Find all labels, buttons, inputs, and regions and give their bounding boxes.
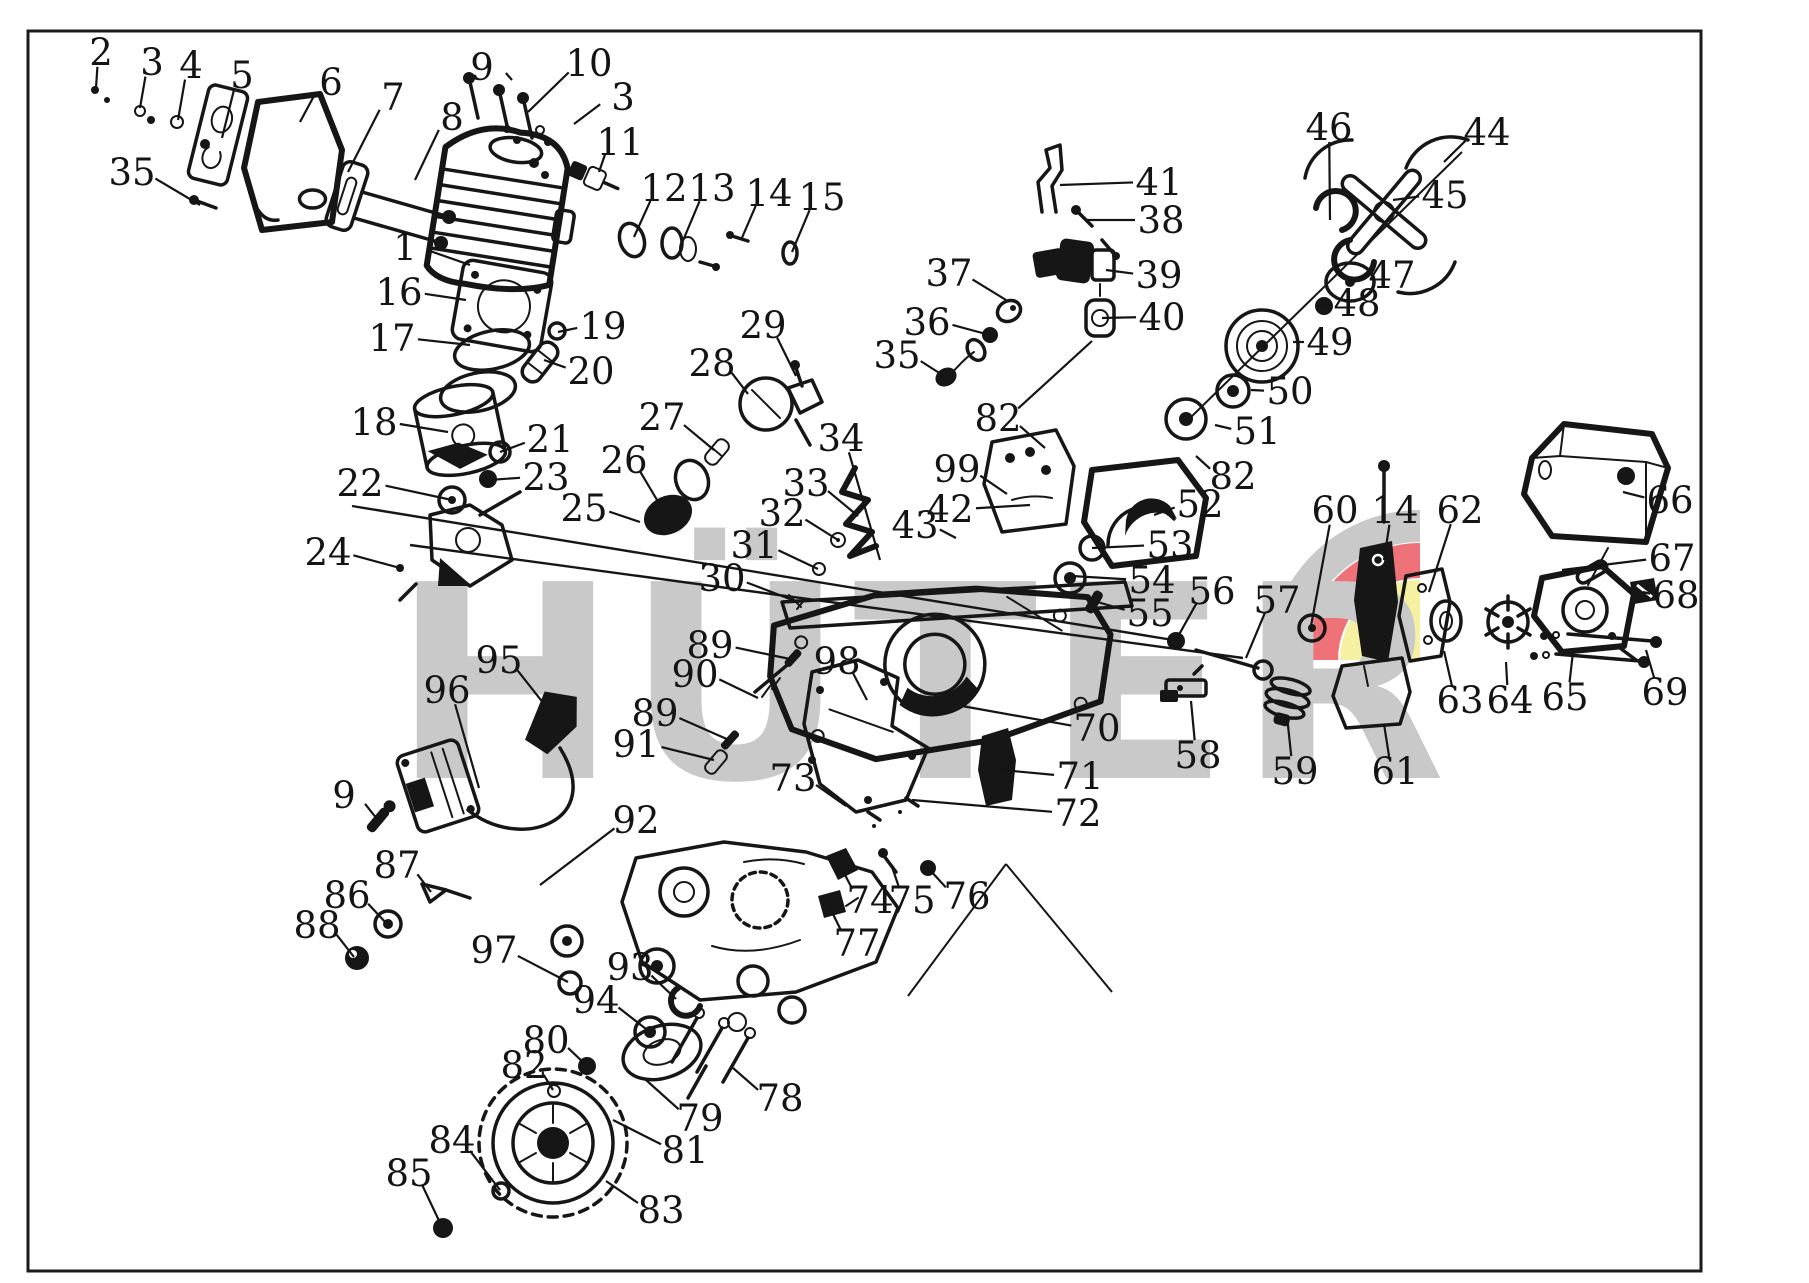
part-number-72-75: 72 [1054,792,1101,835]
part-number-56-59: 56 [1188,570,1235,613]
part-number-98-104: 98 [813,640,860,683]
part-number-11-12: 11 [596,121,643,164]
part-number-16-18: 16 [375,271,422,314]
leader-line-79-82 [646,1080,679,1109]
flywheel-83 [479,1069,627,1217]
leader-line-82-85 [1018,341,1092,408]
part-number-7-7: 7 [381,76,405,119]
part-number-48-51: 48 [1333,282,1380,325]
part-number-18-20: 18 [350,401,397,444]
leader-line-66-69 [1623,492,1644,497]
leader-line-42-45 [976,505,1030,508]
part-number-64-67: 64 [1486,679,1533,722]
leader-line-81-84 [613,1120,661,1144]
leader-line-27-29 [684,425,714,450]
part-number-44-47: 44 [1463,111,1510,154]
leader-line-50-53 [1251,390,1264,391]
part-number-99-105: 99 [933,448,980,491]
watermark-brand-text: HÜTER [392,525,1454,842]
part-number-9-10: 9 [332,774,356,817]
part-number-41-44: 41 [1135,161,1182,204]
part-number-62-65: 62 [1436,489,1483,532]
part-number-25-27: 25 [560,487,607,530]
part-number-82-85: 82 [974,397,1021,440]
part-number-39-42: 39 [1135,254,1182,297]
part-number-29-31: 29 [739,304,786,347]
part-number-57-60: 57 [1253,579,1300,622]
part-number-43-46: 43 [891,504,938,547]
exploded-parts-diagram: HÜTER [0,0,1809,1283]
part-number-68-71: 68 [1652,574,1699,617]
part-number-97-103: 97 [470,929,517,972]
leader-line-82-86 [1196,456,1210,469]
part-number-63-66: 63 [1436,679,1483,722]
leader-line-48-51 [1323,304,1331,305]
screws-78 [672,1008,755,1098]
part-number-1-0: 1 [393,226,417,269]
part-number-21-23: 21 [526,418,573,461]
part-number-91-97: 91 [612,723,659,766]
part-number-95-101: 95 [475,639,522,682]
part-number-77-80: 77 [833,922,880,965]
part-number-26-28: 26 [600,439,647,482]
part-number-45-48: 45 [1421,174,1468,217]
part-number-40-43: 40 [1138,296,1185,339]
part-number-38-41: 38 [1137,199,1184,242]
part-number-75-78: 75 [888,879,935,922]
part-number-61-64: 61 [1371,750,1418,793]
part-number-46-49: 46 [1305,106,1352,149]
part-number-10-11: 10 [565,42,612,85]
piston-18 [412,379,509,482]
leader-line-9-9 [506,73,512,80]
part-number-78-81: 78 [756,1077,803,1120]
part-number-76-79: 76 [943,875,990,918]
part-number-70-73: 70 [1073,707,1120,750]
leader-line-35-37 [155,179,200,205]
part-number-82-87: 82 [500,1044,547,1087]
leader-line-97-103 [518,956,568,982]
leader-line-37-40 [972,279,1006,300]
part-number-2-1: 2 [89,31,113,74]
guide-plate-99 [984,430,1074,532]
intake-parts-12-15 [615,220,797,271]
leader-line-18-20 [400,424,448,432]
part-number-51-54: 51 [1233,410,1280,453]
throttle-lever-41 [1038,145,1062,212]
part-number-88-93: 88 [293,904,340,947]
leader-line-39-42 [1106,270,1133,274]
leader-line-8-8 [415,130,439,180]
part-number-50-53: 50 [1266,370,1313,413]
part-number-34-36: 34 [817,417,864,460]
part-number-92-98: 92 [612,799,659,842]
part-number-4-4: 4 [179,44,203,87]
part-number-6-6: 6 [319,61,343,104]
leader-line-51-54 [1215,425,1231,429]
part-number-24-26: 24 [304,531,351,574]
part-number-87-92: 87 [373,844,420,887]
part-number-17-19: 17 [368,317,415,360]
part-number-27-29: 27 [638,396,685,439]
part-number-73-76: 73 [769,757,816,800]
leader-line-93-99 [651,976,676,999]
part-number-5-5: 5 [230,54,254,97]
part-number-28-30: 28 [688,342,735,385]
part-number-66-69: 66 [1646,479,1693,522]
part-number-3-2: 3 [140,41,164,84]
part-number-94-100: 94 [572,979,619,1022]
primer-bulb-40 [1086,284,1114,336]
part-number-81-84: 81 [661,1129,708,1172]
leader-line-78-81 [733,1068,758,1090]
part-number-69-72: 69 [1641,671,1688,714]
part-number-65-68: 65 [1541,676,1588,719]
part-number-96-102: 96 [423,669,470,712]
muffler-cover-plate [187,84,249,187]
part-number-14-15: 14 [745,172,792,215]
part-number-35-37: 35 [108,151,155,194]
leader-line-25-27 [609,512,640,522]
part-number-13-14: 13 [688,167,735,210]
part-number-33-35: 33 [782,462,829,505]
part-number-19-21: 19 [579,305,626,348]
diagram-page: HÜTER [0,0,1809,1283]
part-number-83-88: 83 [637,1189,684,1232]
part-number-14-16: 14 [1371,489,1418,532]
part-number-90-96: 90 [671,653,718,696]
leader-line-46-49 [1329,142,1330,220]
part-number-22-24: 22 [336,462,383,505]
part-number-12-13: 12 [640,167,687,210]
leader-line-40-43 [1102,317,1136,318]
leader-line-9-10 [365,804,377,819]
part-number-8-8: 8 [440,96,464,139]
starter-65 [1534,566,1636,660]
carburetor-28 [740,360,822,445]
part-number-3-3: 3 [611,76,635,119]
part-number-36-39: 36 [903,301,950,344]
part-number-84-89: 84 [428,1119,475,1162]
part-number-74-77: 74 [846,879,893,922]
part-number-49-52: 49 [1306,321,1353,364]
leader-line-36-39 [952,325,986,334]
leader-line-83-88 [606,1181,638,1203]
part-number-85-90: 85 [385,1152,432,1195]
oil-pump-64 [1486,596,1530,648]
cover-71 [978,728,1016,806]
cylinder [425,120,586,299]
leader-line-10-11 [528,72,569,112]
part-number-37-40: 37 [925,252,972,295]
leader-line-35-38 [921,361,944,376]
part-number-15-17: 15 [798,176,845,219]
part-number-9-9: 9 [470,46,494,89]
part-number-55-58: 55 [1126,592,1173,635]
leader-line-7-7 [348,110,380,172]
part-number-59-62: 59 [1271,750,1318,793]
spark-plug [566,158,622,197]
part-number-20-22: 20 [567,350,614,393]
leader-line-19-21 [558,328,577,332]
leader-line-80-83 [568,1048,586,1065]
carburetor-39 [1032,205,1120,284]
part-number-58-61: 58 [1174,734,1221,777]
part-number-60-63: 60 [1311,489,1358,532]
leader-line-41-44 [1060,182,1133,185]
part-number-82-86: 82 [1209,455,1256,498]
